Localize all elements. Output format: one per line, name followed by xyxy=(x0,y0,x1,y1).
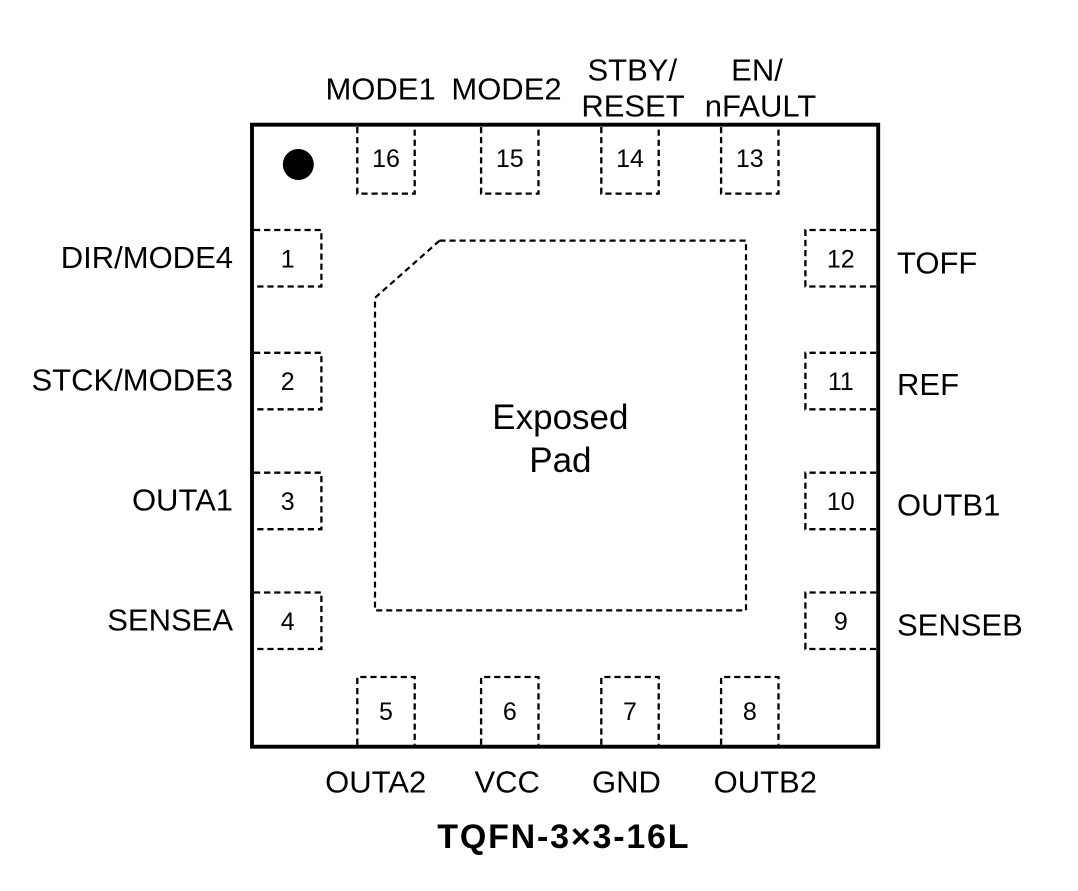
svg-text:2: 2 xyxy=(281,368,295,396)
svg-text:7: 7 xyxy=(623,698,637,726)
svg-text:Pad: Pad xyxy=(529,441,591,480)
svg-text:6: 6 xyxy=(503,698,517,726)
svg-text:SENSEB: SENSEB xyxy=(897,608,1023,643)
svg-text:1: 1 xyxy=(281,245,295,273)
svg-text:VCC: VCC xyxy=(474,765,539,800)
svg-text:SENSEA: SENSEA xyxy=(107,603,233,638)
svg-text:REF: REF xyxy=(897,367,959,402)
svg-text:10: 10 xyxy=(827,488,855,516)
svg-text:EN/: EN/ xyxy=(731,52,783,87)
svg-text:8: 8 xyxy=(743,698,757,726)
svg-text:DIR/MODE4: DIR/MODE4 xyxy=(61,240,233,275)
svg-text:TQFN-3×3-16L: TQFN-3×3-16L xyxy=(437,818,690,856)
svg-text:MODE2: MODE2 xyxy=(451,72,561,107)
svg-text:15: 15 xyxy=(496,145,524,173)
svg-text:RESET: RESET xyxy=(581,89,684,124)
svg-text:4: 4 xyxy=(281,608,295,636)
svg-text:16: 16 xyxy=(372,145,400,173)
svg-text:Exposed: Exposed xyxy=(492,398,628,437)
svg-text:nFAULT: nFAULT xyxy=(705,89,816,124)
svg-text:STBY/: STBY/ xyxy=(588,52,678,87)
svg-text:GND: GND xyxy=(592,765,661,800)
svg-text:13: 13 xyxy=(736,145,764,173)
svg-text:14: 14 xyxy=(616,145,644,173)
svg-text:3: 3 xyxy=(281,488,295,516)
svg-text:5: 5 xyxy=(379,698,393,726)
svg-text:OUTA1: OUTA1 xyxy=(132,482,233,517)
svg-text:MODE1: MODE1 xyxy=(325,72,435,107)
svg-text:11: 11 xyxy=(828,368,854,396)
svg-text:OUTB1: OUTB1 xyxy=(897,488,1000,523)
svg-text:OUTB2: OUTB2 xyxy=(714,765,817,800)
svg-text:12: 12 xyxy=(827,245,855,273)
svg-text:STCK/MODE3: STCK/MODE3 xyxy=(31,362,233,397)
svg-text:9: 9 xyxy=(834,608,848,636)
svg-text:TOFF: TOFF xyxy=(897,245,977,280)
svg-text:OUTA2: OUTA2 xyxy=(325,765,426,800)
